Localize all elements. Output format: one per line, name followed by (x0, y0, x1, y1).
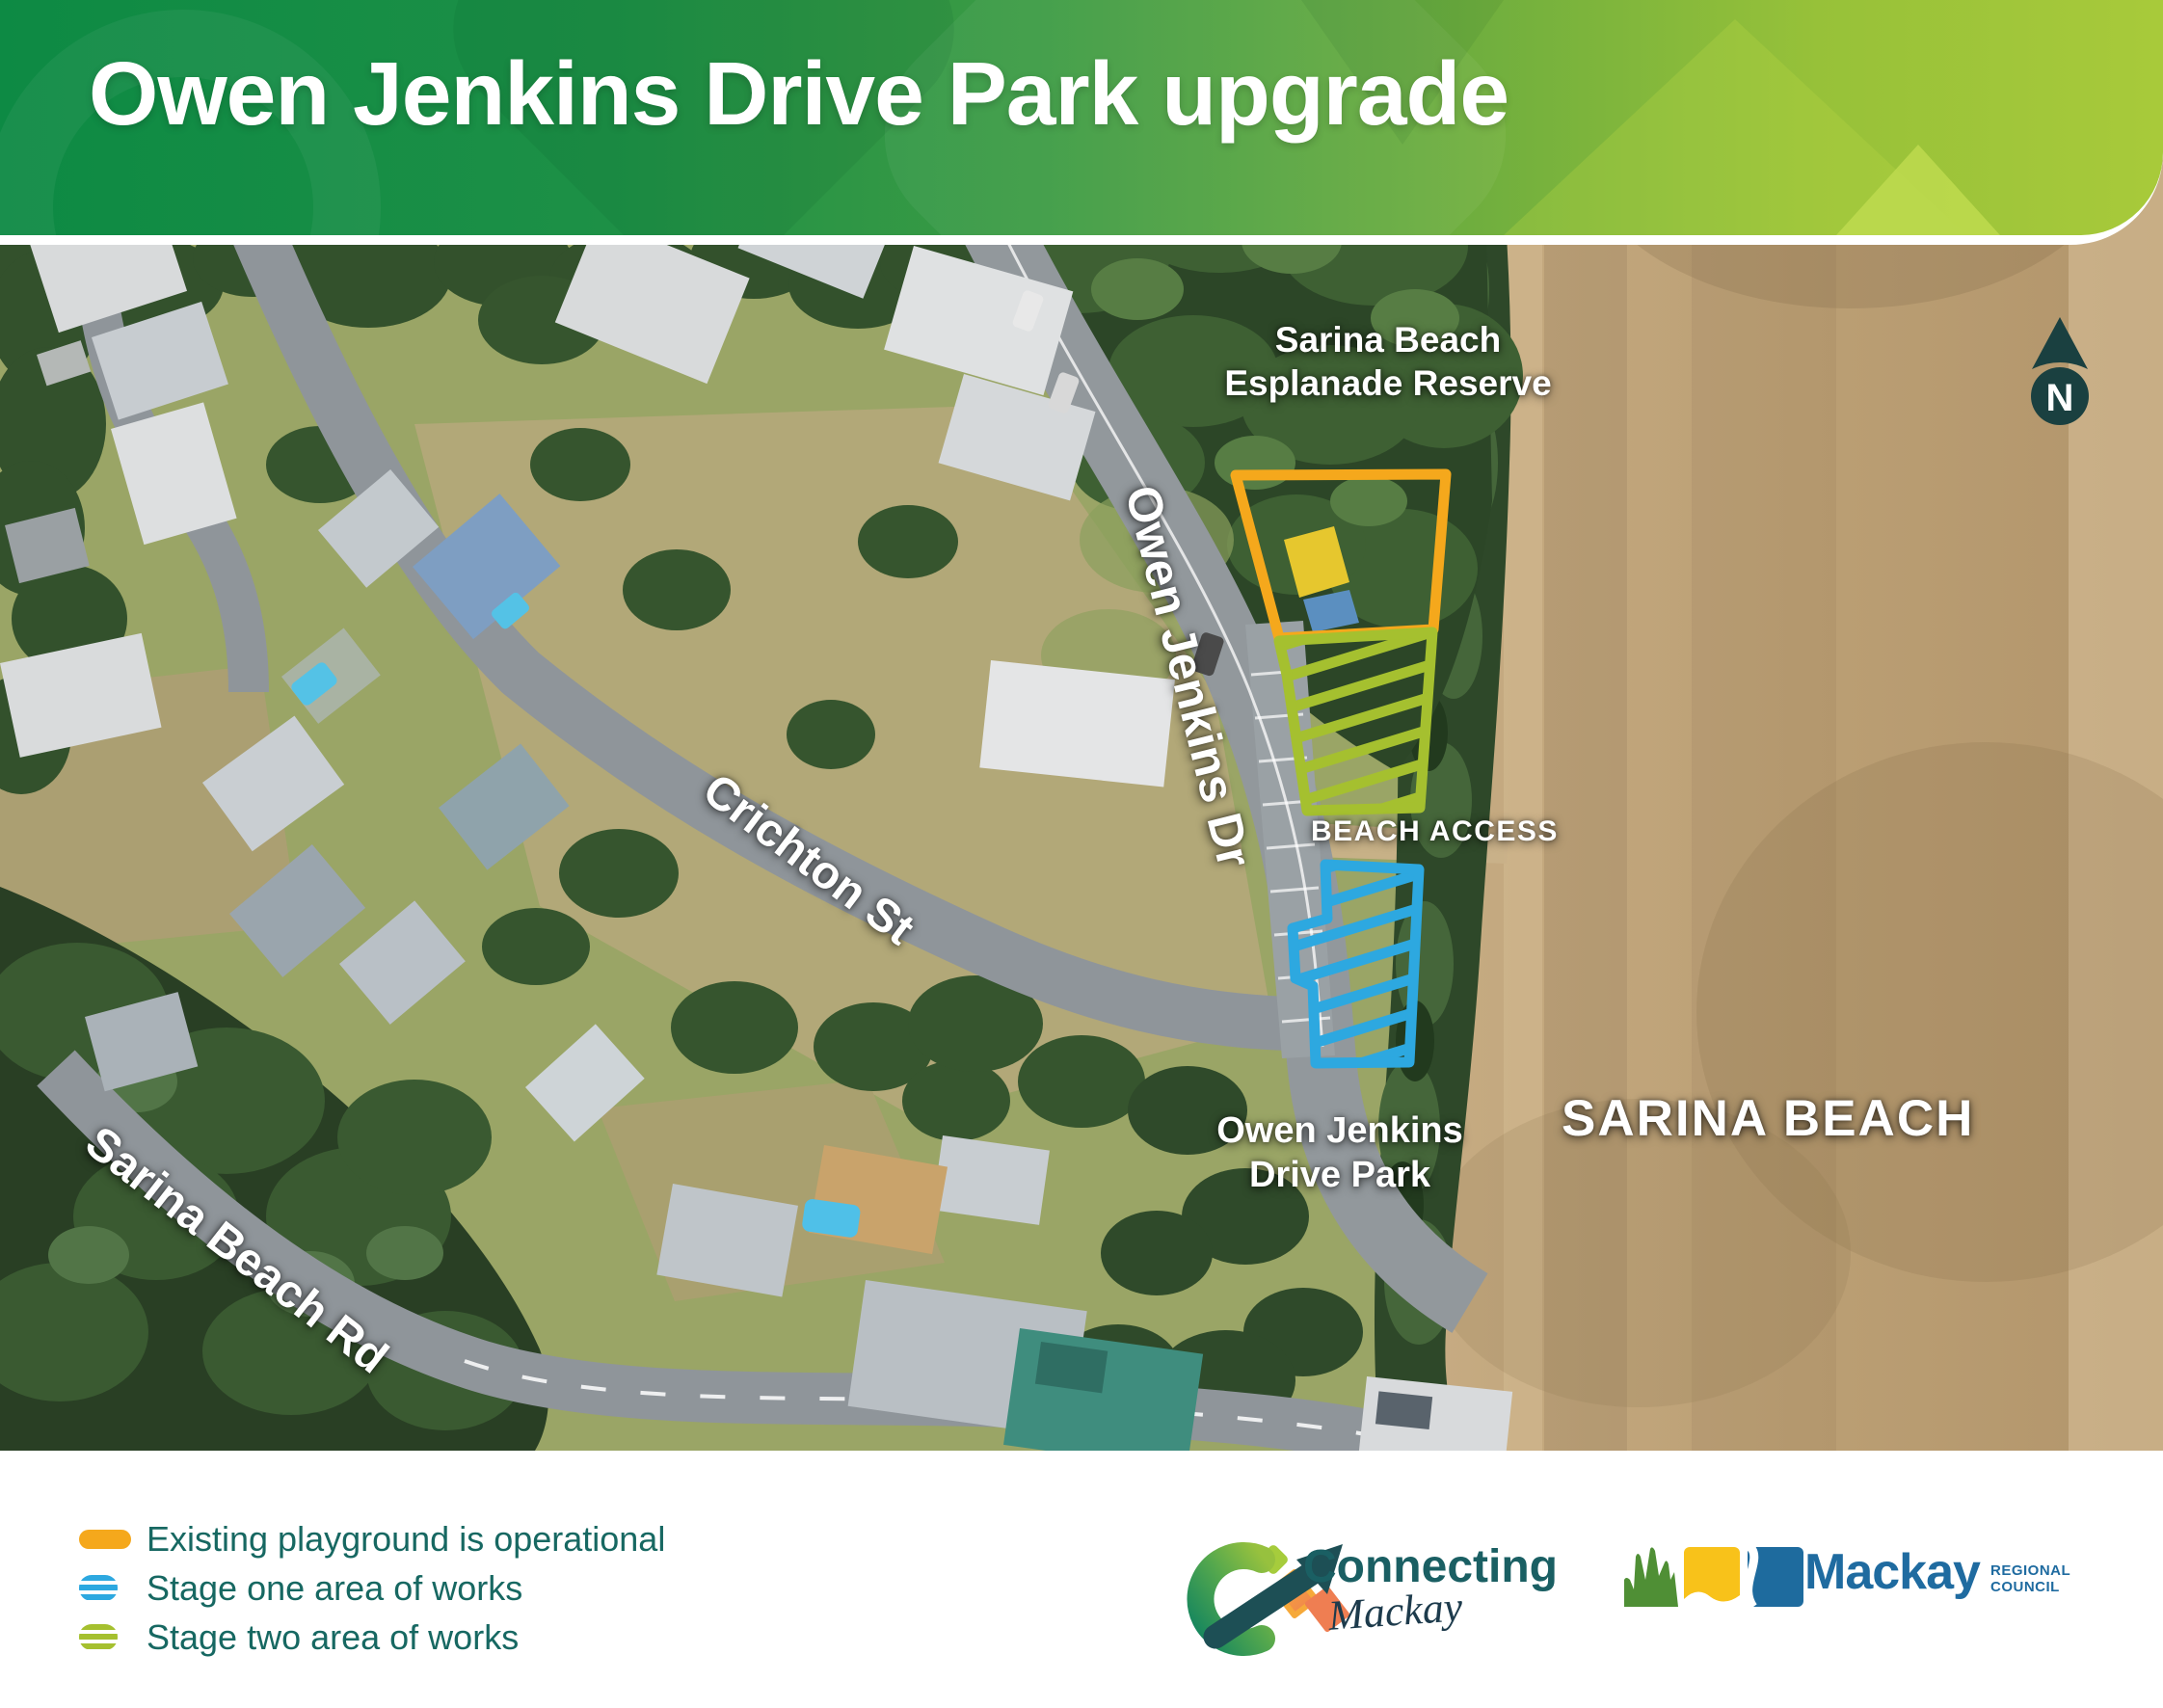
council-sub-line1: REGIONAL (1990, 1562, 2070, 1579)
mackay-council-logo: Mackay REGIONAL COUNCIL (1624, 1547, 2087, 1634)
park-label-line1: Owen Jenkins (1195, 1108, 1484, 1153)
council-sub-line2: COUNCIL (1990, 1579, 2070, 1595)
footer: Existing playground is operational Stage… (0, 1451, 2163, 1708)
legend-item-stage-one: Stage one area of works (79, 1563, 665, 1613)
connecting-mackay-logo: Connecting Mackay (1162, 1531, 1615, 1675)
legend-item-existing: Existing playground is operational (79, 1514, 665, 1563)
north-letter: N (2022, 377, 2097, 420)
park-label-line2: Drive Park (1195, 1153, 1484, 1197)
council-sub-wordmark: REGIONAL COUNCIL (1990, 1562, 2070, 1595)
legend-item-stage-two: Stage two area of works (79, 1613, 665, 1662)
council-wordmark: Mackay (1804, 1543, 1980, 1601)
mackay-council-icon (1624, 1547, 1807, 1609)
reserve-label: Sarina Beach Esplanade Reserve (1195, 318, 1581, 405)
beach-name-label: SARINA BEACH (1562, 1089, 1974, 1148)
beach-access-label: BEACH ACCESS (1311, 815, 1559, 848)
legend-label: Stage one area of works (147, 1568, 522, 1609)
poster: Sarina Beach Esplanade Reserve Owen Jenk… (0, 0, 2163, 1708)
reserve-label-line1: Sarina Beach (1195, 318, 1581, 361)
reserve-label-line2: Esplanade Reserve (1195, 361, 1581, 405)
connecting-mackay-script: Mackay (1326, 1582, 1463, 1641)
stage-two-area (1279, 632, 1432, 811)
legend-label: Existing playground is operational (147, 1519, 665, 1560)
legend-swatch-stage-one-icon (79, 1575, 147, 1601)
page-title: Owen Jenkins Drive Park upgrade (89, 42, 1509, 146)
legend-label: Stage two area of works (147, 1617, 519, 1658)
park-label: Owen Jenkins Drive Park (1195, 1108, 1484, 1197)
header-banner: Owen Jenkins Drive Park upgrade (0, 0, 2163, 235)
legend-swatch-existing-icon (79, 1530, 147, 1549)
legend-swatch-stage-two-icon (79, 1624, 147, 1650)
legend: Existing playground is operational Stage… (79, 1514, 665, 1662)
north-indicator: N (2022, 313, 2097, 429)
